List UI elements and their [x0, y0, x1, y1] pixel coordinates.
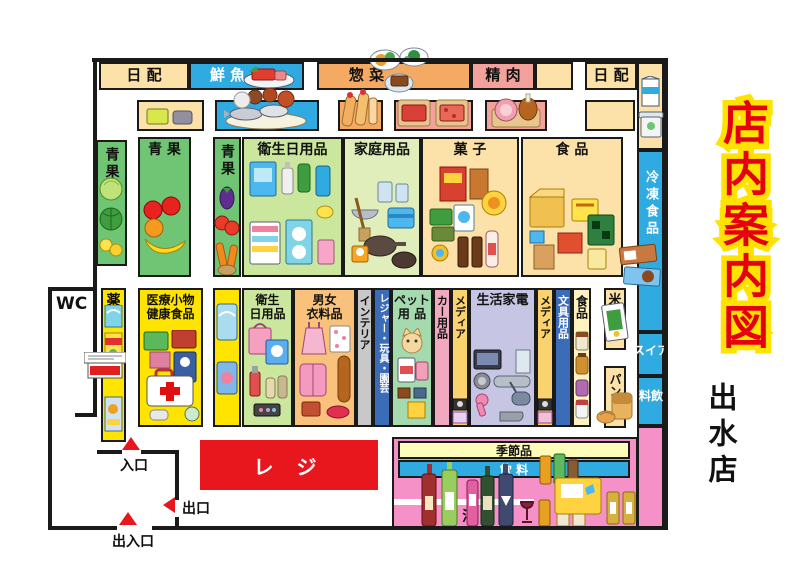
island-fish-shelf [215, 100, 319, 131]
section-label: 青果 [105, 147, 119, 181]
section-yellow-strip [213, 288, 241, 427]
section-label: 日 配 [587, 64, 635, 85]
section-label: ペット 用 品 [393, 290, 431, 321]
section-label: インテリア [359, 295, 370, 350]
section-label: 青 果 [140, 139, 189, 159]
section-pet-goods: ペット 用 品 [391, 288, 433, 427]
entrance-exit-text: 出入口 [112, 534, 154, 550]
section-label: 米 [606, 290, 624, 308]
island-tempura-shelf [338, 100, 383, 131]
section-media-2: メディア [536, 288, 554, 427]
wc-text: WC [56, 294, 87, 314]
section-leisure-toys-garden: レジャー・玩具・園芸 [373, 288, 391, 427]
entrance-exit-label: 出入口 [100, 531, 166, 551]
section-produce: 青 果 [138, 137, 191, 277]
section-label: お 酒 [444, 509, 477, 525]
island-tofu-shelf [137, 100, 204, 131]
section-label: 青果 [220, 144, 234, 178]
section-foods: 食 品 [521, 137, 623, 277]
wall-bottom-a [48, 526, 117, 530]
section-label: 衛生 日用品 [244, 290, 291, 321]
section-medicine: 薬 [101, 288, 126, 442]
section-produce-strip-mid: 青果 [213, 137, 241, 277]
section-liquor-label: お 酒 [410, 506, 510, 526]
section-frozen-foods: 冷凍食品 [637, 150, 664, 332]
section-label: 菓 子 [423, 139, 517, 159]
section-label: 冷凍食品 [644, 170, 657, 238]
section-label: パン [609, 373, 621, 397]
section-hygiene-daily-goods: 衛生日用品 [242, 137, 343, 277]
section-hygiene-daily-goods-2: 衛生 日用品 [242, 288, 293, 427]
section-fresh-fish: 鮮 魚 [189, 62, 304, 90]
section-label: 季節品 [400, 443, 628, 458]
section-label: 食品 [576, 295, 588, 319]
exit-label: 出口 [182, 498, 210, 518]
section-deli: 惣 菜 [317, 62, 471, 90]
section-label: 飲料 [639, 390, 663, 413]
section-drinks-right: 飲料 [637, 376, 664, 426]
section-daily-corner [637, 62, 664, 150]
section-label: 惣 菜 [319, 64, 469, 85]
section-meat: 精 肉 [471, 62, 535, 90]
wc-label: WC [56, 294, 87, 314]
wall-top [92, 58, 668, 62]
section-car-goods: カー用品 [433, 288, 451, 427]
section-produce-strip-left: 青果 [96, 140, 127, 266]
section-liquor-tail [637, 426, 664, 530]
wall-exit-lower [175, 517, 179, 530]
section-label: 衛生日用品 [244, 139, 341, 159]
section-label: 飲 料 [400, 462, 628, 477]
store-name: 出水店 [700, 382, 742, 490]
section-medical-health-foods: 医療小物 健康食品 [138, 288, 203, 427]
section-sweets: 菓 子 [421, 137, 519, 277]
section-label: 家庭用品 [345, 139, 419, 159]
wall-bottom-b [152, 526, 668, 530]
section-label: 食 品 [523, 139, 621, 159]
store-floor-map: 日 配 鮮 魚 惣 菜 精 肉 日 配 青果 青 果 青果 衛生日用品 家庭用品… [0, 0, 800, 577]
entrance-exit-arrow-icon [119, 512, 137, 525]
section-label: メディア [455, 295, 466, 339]
wall-wc-top [48, 287, 97, 291]
section-label: 鮮 魚 [191, 64, 302, 85]
page-title: 店内案内図 店内案内図 [686, 74, 766, 378]
store-name-text: 出水店 [704, 382, 738, 490]
section-label: 医療小物 健康食品 [140, 290, 201, 321]
exit-text: 出口 [182, 501, 210, 517]
wall-right [664, 58, 668, 530]
section-foods-strip: 食品 [572, 288, 591, 427]
section-household-goods: 家庭用品 [343, 137, 421, 277]
section-label: 男女 衣料品 [295, 290, 354, 321]
island-empty-shelf [585, 100, 635, 131]
wall-wc-stub [75, 413, 97, 417]
section-clothing: 男女 衣料品 [293, 288, 356, 427]
section-label: 文具用品 [558, 295, 569, 339]
section-label: 薬 [103, 290, 124, 310]
register-label: レ ジ [254, 451, 325, 480]
section-daily-right: 日 配 [585, 62, 637, 90]
section-label: 日 配 [101, 64, 187, 85]
entrance-label: 入口 [106, 455, 162, 475]
section-media-1: メディア [451, 288, 469, 427]
island-ham-shelf [485, 100, 547, 131]
entrance-arrow-icon [122, 437, 140, 450]
section-label: 生活家電 [471, 290, 534, 308]
section-label: カー用品 [437, 295, 448, 339]
wall-exit-upper [175, 450, 179, 500]
island-meat-shelf [394, 100, 473, 131]
section-daily-shelf [535, 62, 573, 90]
section-rice: 米 [604, 288, 626, 350]
wall-left-outer [48, 287, 52, 530]
liquor-aisle-gap [394, 499, 534, 505]
wall-left-main [93, 58, 97, 417]
wall-entrance-b [141, 450, 179, 454]
section-bread: パン [604, 366, 626, 428]
exit-arrow-icon [163, 497, 175, 513]
entrance-text: 入口 [120, 458, 148, 474]
section-ice-cream: アイス [637, 332, 664, 376]
wall-entrance-a [97, 450, 122, 454]
section-interior: インテリア [356, 288, 373, 427]
section-home-appliances: 生活家電 [469, 288, 536, 427]
section-drinks-bottom: 飲 料 [398, 460, 630, 478]
section-stationery: 文具用品 [554, 288, 572, 427]
section-seasonal: 季節品 [398, 441, 630, 459]
section-label: 精 肉 [473, 64, 533, 85]
page-title-text: 店内案内図 [686, 74, 766, 378]
section-daily-left: 日 配 [99, 62, 189, 90]
section-label: レジャー・玩具・園芸 [377, 293, 387, 393]
section-label: メディア [540, 295, 551, 339]
register-area: レ ジ [200, 440, 378, 490]
